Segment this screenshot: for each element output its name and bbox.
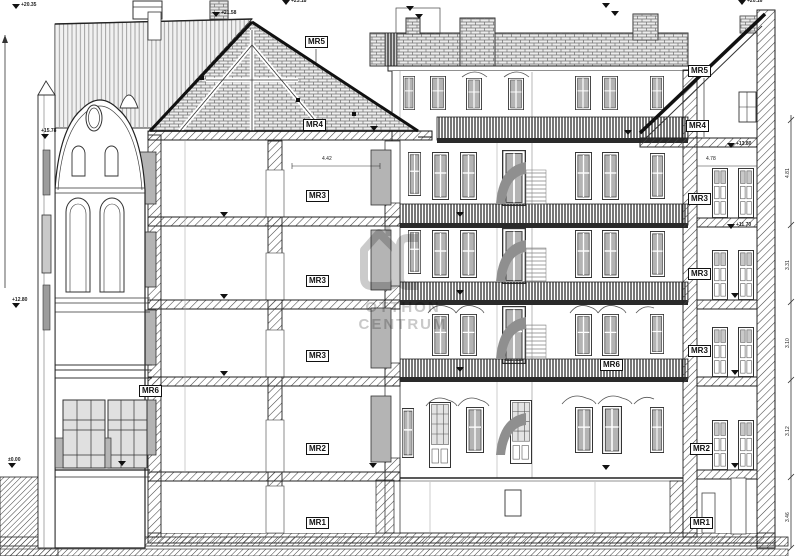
room-label-left-mr2: MR2 [306, 443, 329, 455]
room-label-left-mr3-mid: MR3 [306, 275, 329, 287]
room-label-left-mr1: MR1 [306, 517, 329, 529]
level-marker: ±0.00 [8, 459, 20, 468]
section-drawing: OTTHON CENTRUM MR5 MR4 MR3 MR3 MR3 MR6 M… [0, 0, 800, 556]
room-label-right-mr5: MR5 [688, 65, 711, 77]
room-label-left-mr4: MR4 [303, 119, 326, 131]
room-label-right-mr3-mid: MR3 [688, 268, 711, 280]
street-facade [38, 81, 152, 548]
level-marker: +12.80 [12, 299, 27, 308]
dimension-right-5: 3.46 [786, 512, 791, 522]
room-label-right-mr6: MR6 [600, 359, 623, 371]
level-marker: +20.35 [12, 4, 36, 9]
room-label-left-mr5: MR5 [305, 36, 328, 48]
level-marker: +23.18 [282, 0, 306, 5]
room-label-left-mr3-top: MR3 [306, 190, 329, 202]
room-label-right-mr1: MR1 [690, 517, 713, 529]
level-marker: +21.58 [212, 12, 236, 17]
dimension-right-4: 3.12 [786, 426, 791, 436]
room-label-right-mr4: MR4 [686, 120, 709, 132]
room-label-right-mr3-low: MR3 [688, 345, 711, 357]
level-marker: +20.16 [738, 0, 762, 5]
dimension-attic-right: 4.78 [706, 157, 716, 162]
room-label-right-mr3-top: MR3 [688, 193, 711, 205]
dimension-right-3: 3.10 [786, 338, 791, 348]
level-marker: +13.80 [727, 143, 751, 148]
dimension-right-2: 3.31 [786, 260, 791, 270]
dimension-attic-left: 4.42 [322, 157, 332, 162]
room-label-left-mr6: MR6 [139, 385, 162, 397]
level-marker: +15.78 [41, 130, 56, 139]
level-marker: +11.70 [727, 224, 751, 229]
room-label-left-mr3-low: MR3 [306, 350, 329, 362]
dimension-right-1: 4.81 [786, 168, 791, 178]
section-drawing-canvas [0, 0, 800, 556]
room-label-right-mr2: MR2 [690, 443, 713, 455]
